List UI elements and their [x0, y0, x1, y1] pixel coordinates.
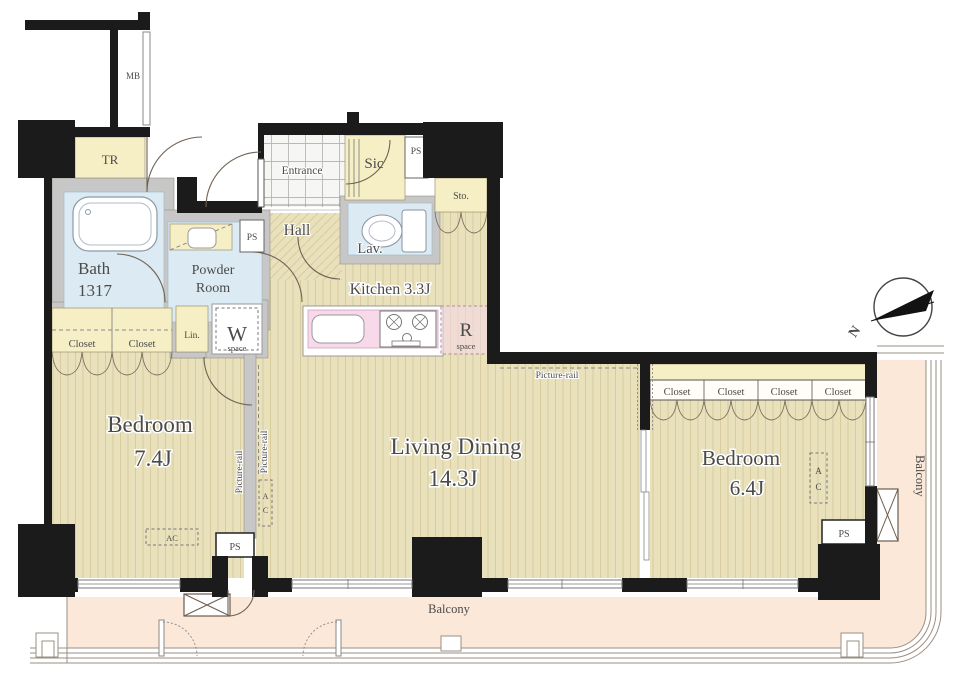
sliding-door [641, 430, 649, 560]
powder-label-1: Powder [192, 263, 235, 278]
entrance-label: Entrance [282, 165, 323, 177]
ac-label: A [815, 466, 822, 476]
closet-label: Closet [129, 339, 156, 350]
closet-label: Closet [664, 387, 691, 398]
bath-size: 1317 [78, 281, 113, 300]
vanity-icon [170, 224, 232, 250]
closet-label: Closet [718, 387, 745, 398]
balcony-label: Balcony [428, 602, 470, 616]
picture-rail-label: Picture-rail [260, 430, 270, 473]
linen-closet [176, 306, 208, 352]
ac-label: C [815, 482, 821, 492]
hall-label: Hall [284, 222, 311, 239]
front-door-leaf [258, 159, 264, 207]
window [508, 579, 622, 589]
compass-icon: N [846, 278, 934, 340]
bedroom1-size: 7.4J [134, 446, 172, 471]
picture-rail-label: Picture-rail [235, 450, 245, 493]
ac-label: A [263, 492, 269, 501]
living-bedroom2-divider [640, 364, 650, 430]
picture-rail-label: Picture-rail [536, 371, 579, 381]
north-label: N [846, 324, 864, 341]
tr-label: TR [102, 152, 119, 167]
washer-space-label: space [228, 343, 247, 353]
sic-label: Sic [364, 156, 384, 172]
fridge-letter: R [460, 320, 473, 341]
bedroom1-living-divider [244, 352, 256, 538]
lav-label: Lav. [357, 241, 382, 257]
balcony-label: Balcony [913, 455, 927, 497]
ps-label: PS [411, 147, 422, 157]
fridge-space-label: space [457, 341, 476, 351]
bath-label: Bath [78, 259, 111, 278]
corridor-floor [266, 280, 302, 354]
ac-label: AC [166, 533, 178, 543]
mb-label: MB [126, 71, 140, 81]
ps-label: PS [838, 529, 849, 540]
closet-label: Closet [69, 339, 96, 350]
front-door-arc [206, 152, 261, 207]
powder-label-2: Room [196, 281, 230, 296]
lin-label: Lin. [184, 331, 200, 341]
window [687, 579, 798, 589]
closet-label: Closet [825, 387, 852, 398]
living-size: 14.3J [428, 466, 477, 491]
meter-box-door [143, 32, 150, 125]
bedroom2-size: 6.4J [730, 476, 764, 500]
sto-label: Sto. [453, 191, 469, 202]
ps-label: PS [247, 233, 258, 243]
bedroom1-name: Bedroom [107, 412, 193, 437]
ac-label: C [263, 506, 268, 515]
stove-icon [380, 311, 436, 347]
sink-icon [312, 315, 364, 343]
bedroom2-name: Bedroom [702, 446, 780, 470]
living-name: Living Dining [391, 434, 522, 459]
closet-label: Closet [771, 387, 798, 398]
bathtub-icon [73, 197, 157, 251]
kitchen-label: Kitchen 3.3J [350, 281, 431, 298]
ps-label: PS [229, 542, 240, 553]
floor-plan: MB TR Bath 1317 Powder Room Entrance Sic… [0, 0, 960, 675]
window [78, 580, 180, 588]
window [865, 397, 875, 486]
window [292, 579, 412, 589]
